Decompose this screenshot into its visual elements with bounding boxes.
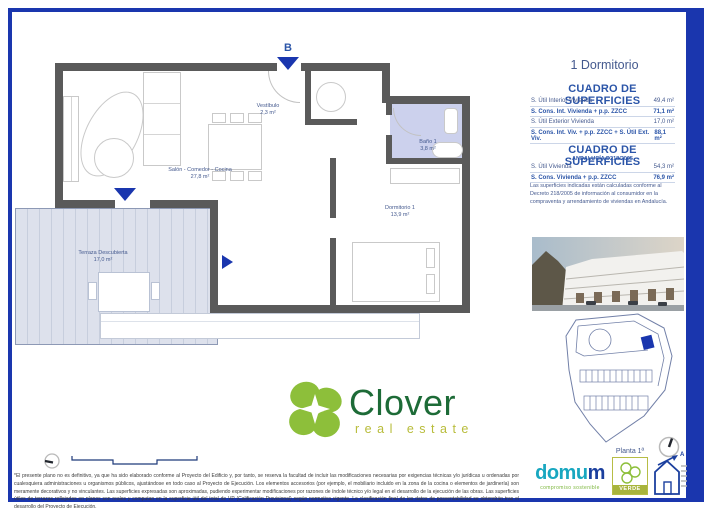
row-label: S. Cons. Int. Vivienda + p.p. ZZCC [531, 109, 627, 115]
wall [462, 96, 470, 313]
hall-door-arrow-icon [222, 255, 233, 269]
block-label: B [276, 42, 300, 54]
room-label-vestibulo: Vestíbulo 2,3 m² [240, 103, 296, 118]
room-area: 13,9 m² [391, 212, 410, 218]
site-building-band [576, 321, 664, 386]
site-parking-rows [580, 370, 652, 410]
row-label: S. Útil Vivienda [531, 164, 572, 170]
entrance-door-arc [268, 71, 300, 103]
wall [330, 158, 336, 218]
terrace-table [98, 272, 150, 312]
wall [210, 305, 470, 313]
scale-line [72, 456, 197, 464]
room-label-bano: Baño 1 3,8 m² [408, 139, 448, 154]
bathroom-sink [444, 108, 458, 134]
legal-disclaimer: *El presente plano no es definitivo, ya … [14, 473, 519, 508]
bedroom-wardrobe [390, 168, 460, 184]
verde-label: VERDE [613, 485, 647, 494]
clover-logo: Clover real estate [285, 376, 485, 446]
lower-balcony-line [101, 321, 419, 322]
verde-clover-icon [613, 459, 647, 486]
wardrobe-door-line [71, 97, 72, 181]
wall [301, 63, 390, 71]
energy-rating-label: A [680, 452, 684, 458]
wall [386, 103, 392, 115]
clover-tagline: real estate [355, 422, 474, 436]
wc-basin [316, 82, 346, 112]
house-icon [652, 452, 688, 498]
kitchen-counter [143, 72, 181, 166]
table-row: S. Cons. Int. Vivienda + p.p. ZZCC 71,1 … [530, 107, 675, 118]
clover-wordmark: Clover [349, 382, 456, 424]
site-plan [548, 312, 692, 444]
verde-badge: VERDE [612, 457, 648, 495]
wall [305, 119, 357, 125]
room-area: 17,0 m² [94, 257, 113, 263]
floor-caption: Planta 1ª [600, 448, 660, 455]
table-row: S. Útil Interior Vivienda 49,4 m² [530, 96, 675, 107]
entrance-arrow-icon [277, 57, 299, 70]
room-area: 2,3 m² [260, 110, 276, 116]
room-name: Salón - Comedor - Cocina [168, 167, 232, 173]
andalucia-table-note: Las superficies indicadas están calculad… [530, 183, 680, 206]
room-name: Terraza Descubierta [78, 250, 127, 256]
row-label: S. Útil Interior Vivienda [531, 98, 592, 104]
wall [330, 238, 336, 305]
row-label: S. Útil Exterior Vivienda [531, 119, 594, 125]
wall [210, 200, 218, 313]
row-value: 54,3 m² [654, 164, 674, 170]
wall [150, 200, 218, 208]
domum-tagline: compromiso sostenible [530, 485, 610, 491]
dining-table [208, 124, 262, 170]
room-area: 27,8 m² [191, 174, 210, 180]
kitchen-divider [144, 134, 180, 135]
room-name: Baño 1 [419, 139, 436, 145]
wall [55, 200, 115, 208]
energy-scale-lines [681, 466, 687, 486]
table-row: S. Útil Vivienda 54,3 m² [530, 162, 675, 173]
highlighted-unit [641, 335, 655, 350]
energy-house-logo: A [652, 452, 688, 498]
site-pool [589, 329, 611, 351]
room-name: Vestíbulo [257, 103, 280, 109]
row-value: 71,1 m² [653, 109, 674, 115]
row-label: S. Cons. Int. Viv. + p.p. ZZCC + S. Útil… [531, 130, 654, 142]
row-value: 49,4 m² [654, 98, 674, 104]
sofa-chaise [94, 138, 134, 178]
andalucia-table: S. Útil Vivienda 54,3 m² S. Cons. Vivien… [530, 162, 675, 183]
graphic-scale-bar [40, 448, 205, 472]
table-row: S. Útil Exterior Vivienda 17,0 m² [530, 117, 675, 128]
domum-wordmark: domum [530, 462, 610, 485]
wall [55, 63, 277, 71]
terrace-chair [88, 282, 97, 300]
wall [305, 71, 311, 125]
domum-logo: domum compromiso sostenible [530, 462, 610, 491]
wall [55, 63, 63, 208]
floorplan-sheet: B [0, 0, 705, 508]
terrace-chair [151, 282, 160, 300]
row-value: 88,1 m² [654, 130, 674, 142]
domum-wordmark-blue: m [588, 462, 605, 484]
table-row: S. Cons. Vivienda + p.p. ZZCC 76,9 m² [530, 173, 675, 184]
room-name: Dormitorio 1 [385, 205, 415, 211]
row-label: S. Cons. Vivienda + p.p. ZZCC [531, 175, 616, 181]
clover-leaf-icon [285, 378, 345, 442]
wall [386, 96, 470, 104]
table-row: S. Cons. Int. Viv. + p.p. ZZCC + S. Útil… [530, 128, 675, 145]
lower-balcony-outline [100, 313, 420, 339]
room-label-salon: Salón - Comedor - Cocina 27,8 m² [160, 167, 240, 182]
building-render-image [532, 237, 684, 311]
bed-pillow [426, 248, 435, 268]
dining-chair [212, 113, 226, 123]
bed-pillow [426, 274, 435, 294]
room-label-dormitorio: Dormitorio 1 13,9 m² [370, 205, 430, 220]
unit-type-heading: 1 Dormitorio [522, 58, 687, 72]
kitchen-divider [144, 103, 180, 104]
room-area: 3,8 m² [420, 146, 436, 152]
dining-chair [248, 171, 262, 181]
room-label-terraza: Terraza Descubierta 17,0 m² [70, 250, 136, 265]
surfaces-table: S. Útil Interior Vivienda 49,4 m² S. Con… [530, 96, 675, 144]
row-value: 76,9 m² [653, 175, 674, 181]
wall [386, 158, 470, 164]
domum-wordmark-teal: domu [535, 462, 587, 484]
row-value: 17,0 m² [654, 119, 674, 125]
terrace-door-arrow-icon [114, 188, 136, 201]
